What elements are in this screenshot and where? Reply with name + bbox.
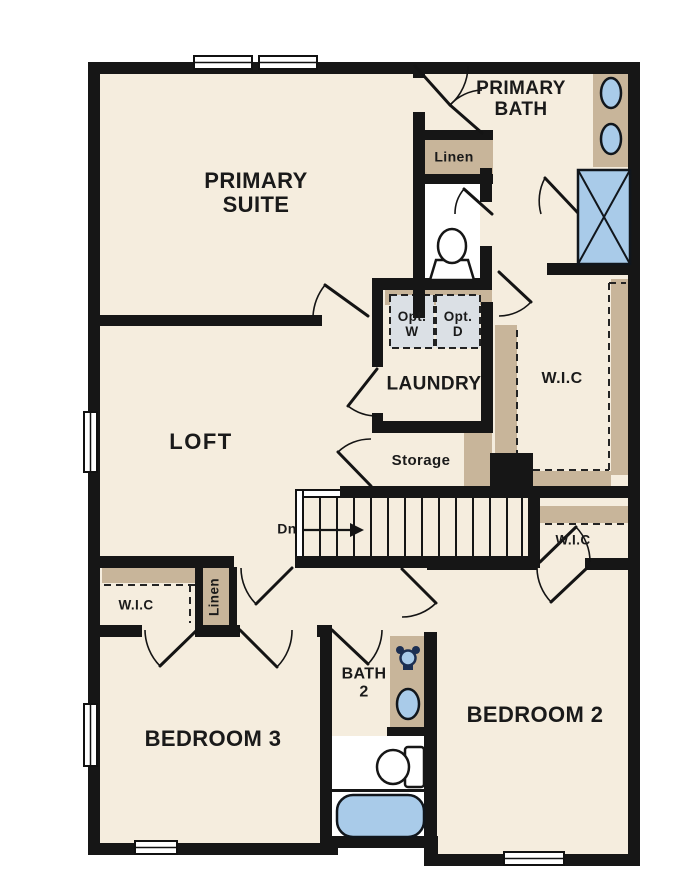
room-label-wic-bedroom3: W.I.C (119, 599, 154, 614)
room-label-wic-hall: W.I.C (556, 534, 591, 549)
room-label-primary-bath: PRIMARYBATH (476, 79, 566, 121)
wic-shelf-left (495, 325, 517, 461)
room-label-bedroom2: BEDROOM 2 (467, 703, 604, 727)
label-stairs-dn: Dn (277, 521, 296, 536)
wic-hall-shelf (540, 506, 628, 523)
floor-plan-drawing (0, 0, 679, 880)
label-linen-hall: Linen (208, 578, 223, 616)
window (504, 852, 564, 865)
room-label-storage: Storage (392, 453, 451, 470)
storage-shelf (464, 433, 492, 488)
room-label-loft: LOFT (169, 430, 232, 454)
room-label-primary-suite: PRIMARYSUITE (204, 169, 307, 217)
room-label-bath2: BATH2 (342, 665, 387, 700)
wic-bedroom3-shelf (102, 567, 200, 583)
window (84, 704, 97, 766)
stair-edge (296, 490, 303, 558)
window (259, 56, 317, 69)
shower-icon (578, 170, 630, 264)
primary-sink-2-icon (601, 124, 621, 154)
window (194, 56, 252, 69)
label-opt-dryer: Opt.D (444, 310, 473, 340)
room-label-laundry: LAUNDRY (387, 375, 482, 396)
wic-shelf-right (611, 279, 628, 475)
window (84, 412, 97, 472)
floor-plan: PRIMARYSUITE PRIMARYBATH Linen Opt.W Opt… (0, 0, 679, 880)
toilet-bath2-icon (377, 747, 424, 787)
room-label-bedroom3: BEDROOM 3 (145, 727, 282, 751)
primary-sink-1-icon (601, 78, 621, 108)
chase-block (490, 453, 533, 498)
window (135, 841, 177, 854)
bathtub-icon (337, 795, 424, 837)
label-opt-washer: Opt.W (398, 310, 427, 340)
bath2-sink-icon (397, 689, 419, 719)
label-linen-bath: Linen (434, 149, 473, 164)
room-label-wic-primary: W.I.C (541, 370, 582, 388)
